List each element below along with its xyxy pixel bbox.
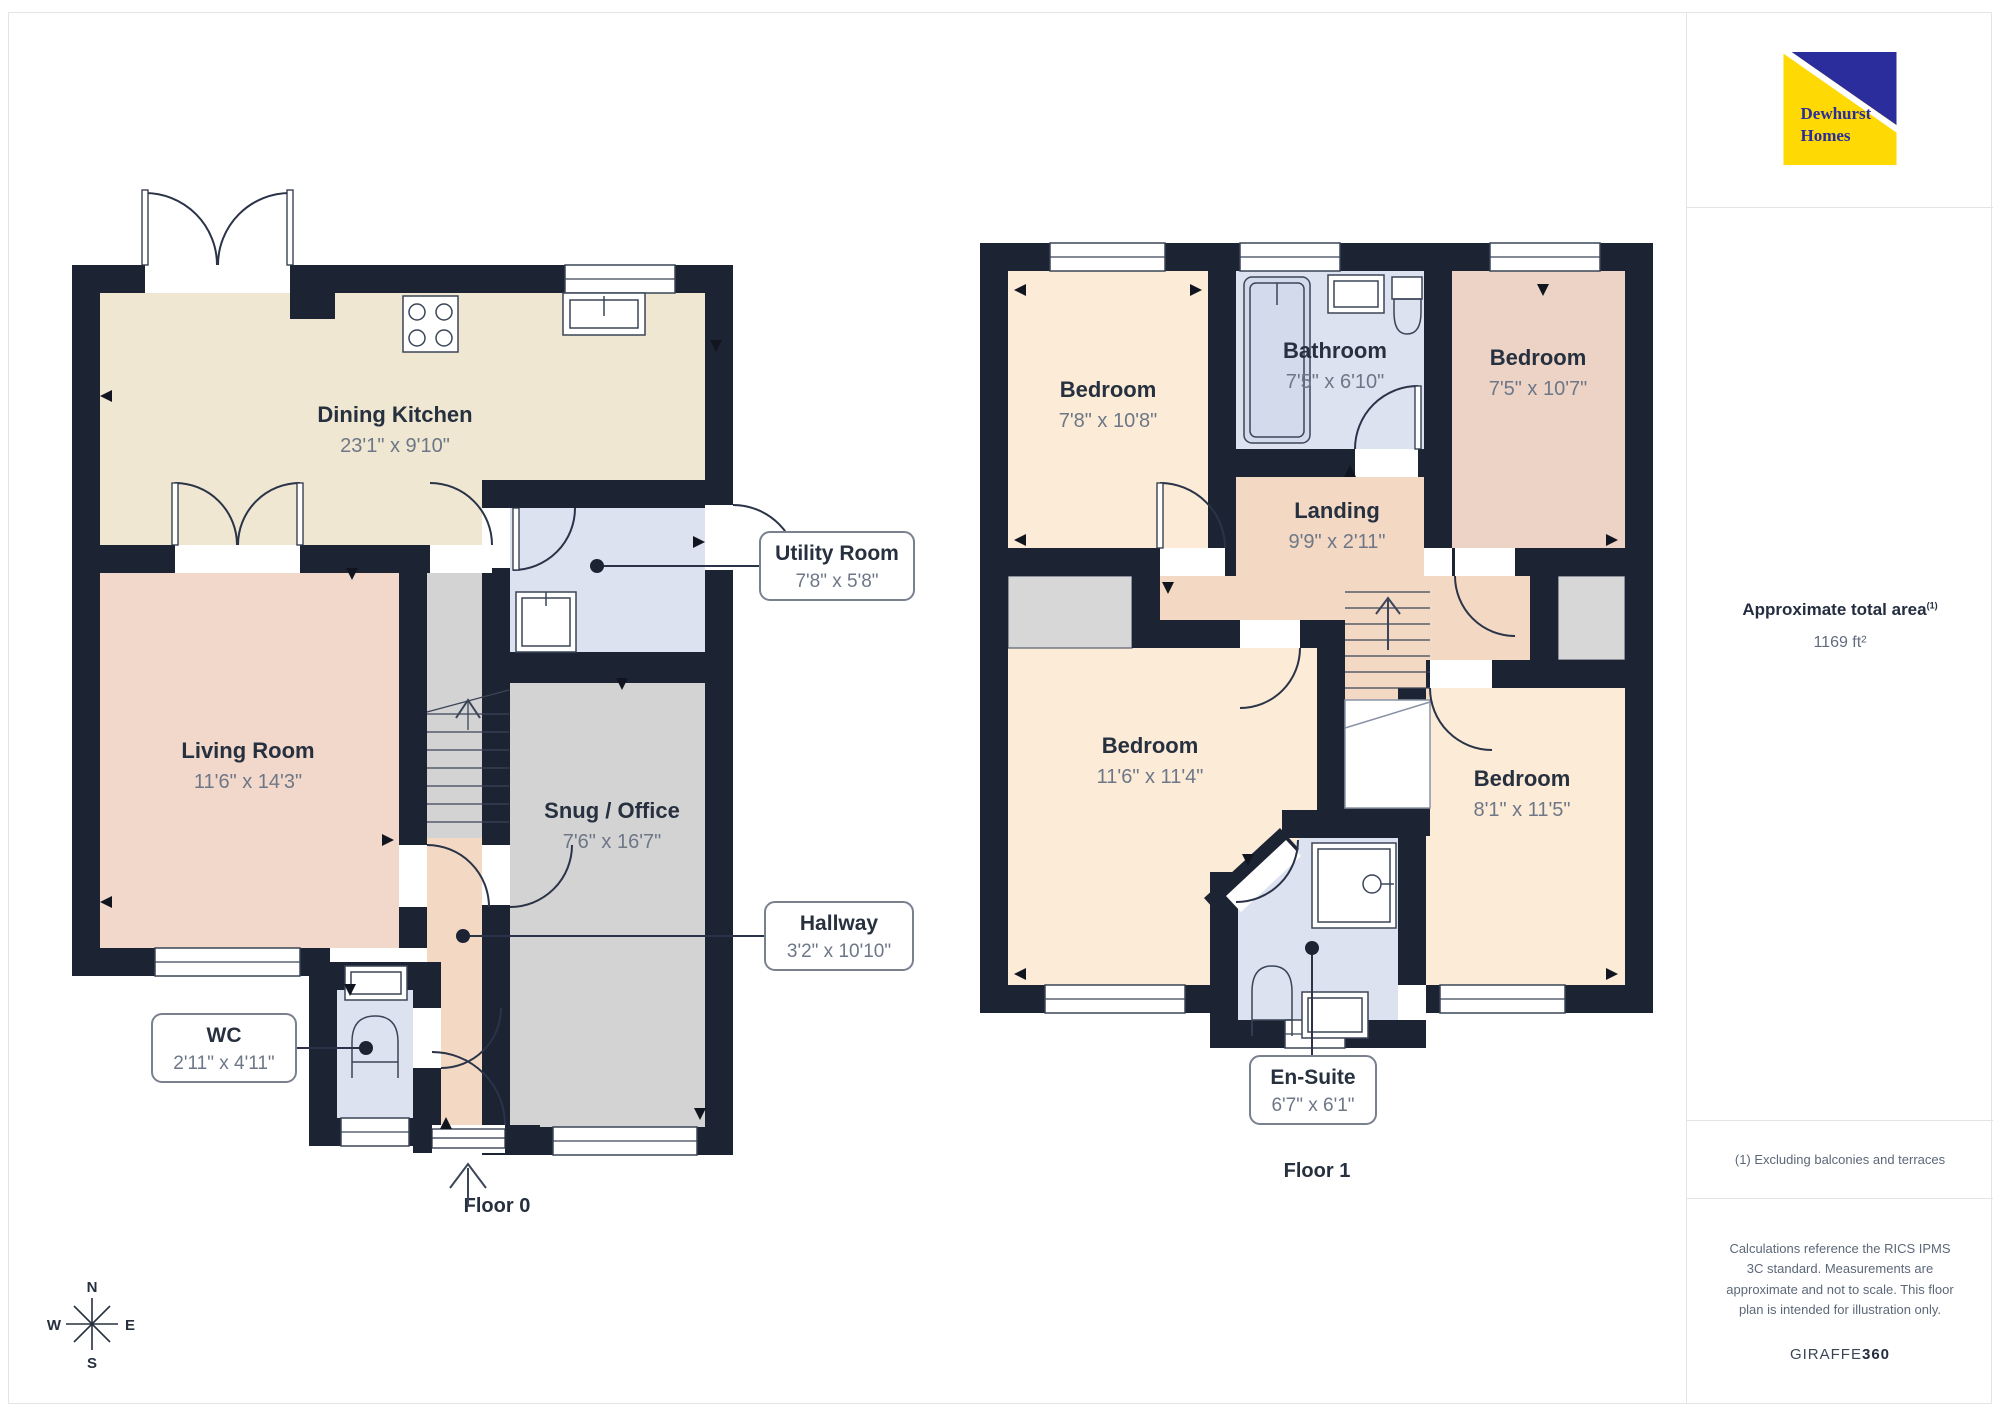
compass-e: E — [125, 1317, 135, 1334]
floor0-label: Floor 0 — [464, 1195, 531, 1217]
giraffe360-brand: GIRAFFE360 — [1790, 1346, 1890, 1363]
ensuite-callout-label: En-Suite — [1270, 1066, 1355, 1089]
floorplan-page: Dining Kitchen 23'1" x 9'10" Living Room… — [0, 0, 2000, 1414]
wc-callout-dims: 2'11" x 4'11" — [173, 1053, 274, 1074]
bedroom-tr-dims: 7'5" x 10'7" — [1489, 378, 1588, 400]
logo-text-line1: Dewhurst — [1801, 104, 1872, 123]
bedroom-br-label: Bedroom — [1474, 766, 1571, 791]
utility-callout-dims: 7'8" x 5'8" — [795, 571, 878, 592]
bedroom-tl-label: Bedroom — [1060, 377, 1157, 402]
bedroom-bl-dims: 11'6" x 11'4" — [1097, 766, 1204, 788]
total-area-title: Approximate total area(1) — [1687, 600, 1993, 620]
kitchen-sink-icon — [563, 293, 645, 335]
hob-icon — [403, 296, 458, 352]
snug-office-label: Snug / Office — [544, 798, 680, 823]
disclaimer-text: Calculations reference the RICS IPMS 3C … — [1720, 1239, 1960, 1320]
living-room-label: Living Room — [181, 738, 314, 763]
area-footnote: (1) Excluding balconies and terraces — [1735, 1152, 1945, 1167]
logo-text-line2: Homes — [1801, 126, 1851, 145]
hallway-leader-dot — [456, 929, 470, 943]
landing-label: Landing — [1294, 498, 1380, 523]
bathroom-dims: 7'5" x 6'10" — [1286, 371, 1385, 393]
floor1-label: Floor 1 — [1284, 1160, 1351, 1182]
wc-callout-label: WC — [207, 1024, 242, 1047]
compass-icon: N S W E — [47, 1279, 135, 1372]
wc-leader-dot — [359, 1041, 373, 1055]
floor1-plan: Bedroom 7'8" x 10'8" Bathroom 7'5" x 6'1… — [980, 243, 1653, 1182]
dining-kitchen-dims: 23'1" x 9'10" — [340, 435, 450, 457]
bedroom-tr-label: Bedroom — [1490, 345, 1587, 370]
info-panel: Dewhurst Homes Approximate total area(1)… — [1686, 12, 1993, 1404]
floorplans-drawing: Dining Kitchen 23'1" x 9'10" Living Room… — [0, 0, 1686, 1414]
dining-kitchen-label: Dining Kitchen — [317, 402, 472, 427]
bedroom-tl-dims: 7'8" x 10'8" — [1059, 410, 1158, 432]
hallway-callout-dims: 3'2" x 10'10" — [787, 941, 891, 962]
wc-sink-icon — [345, 966, 407, 1000]
area-footnote-ref: (1) — [1927, 600, 1938, 610]
landing-dims: 9'9" x 2'11" — [1288, 531, 1385, 553]
dewhurst-homes-logo: Dewhurst Homes — [1784, 52, 1897, 170]
floor0-plan: Dining Kitchen 23'1" x 9'10" Living Room… — [72, 190, 914, 1217]
shower-icon — [1312, 843, 1396, 928]
compass-s: S — [87, 1355, 97, 1372]
utility-leader-dot — [590, 559, 604, 573]
bedroom-bl-label: Bedroom — [1102, 733, 1199, 758]
compass-w: W — [47, 1317, 62, 1334]
bedroom-br-dims: 8'1" x 11'5" — [1473, 799, 1570, 821]
total-area-block: Approximate total area(1) 1169 ft² — [1687, 600, 1993, 652]
ensuite-leader-dot — [1305, 941, 1319, 955]
disclaimer-block: Calculations reference the RICS IPMS 3C … — [1687, 1198, 1993, 1404]
ensuite-callout-dims: 6'7" x 6'1" — [1271, 1095, 1354, 1116]
total-area-value: 1169 ft² — [1687, 634, 1993, 652]
living-room-dims: 11'6" x 14'3" — [194, 771, 302, 793]
eaves-storage-left — [1008, 576, 1132, 648]
hallway-callout-label: Hallway — [800, 912, 879, 935]
panel-divider-1 — [1687, 207, 1993, 208]
compass-n: N — [87, 1279, 98, 1296]
washing-machine-icon — [516, 592, 576, 652]
bathroom-label: Bathroom — [1283, 338, 1387, 363]
bathroom-sink-icon — [1328, 275, 1384, 313]
floor1-stairs — [1345, 592, 1430, 808]
snug-office-dims: 7'6" x 16'7" — [563, 831, 662, 853]
utility-callout-label: Utility Room — [775, 542, 899, 565]
eaves-storage-right — [1558, 576, 1625, 660]
